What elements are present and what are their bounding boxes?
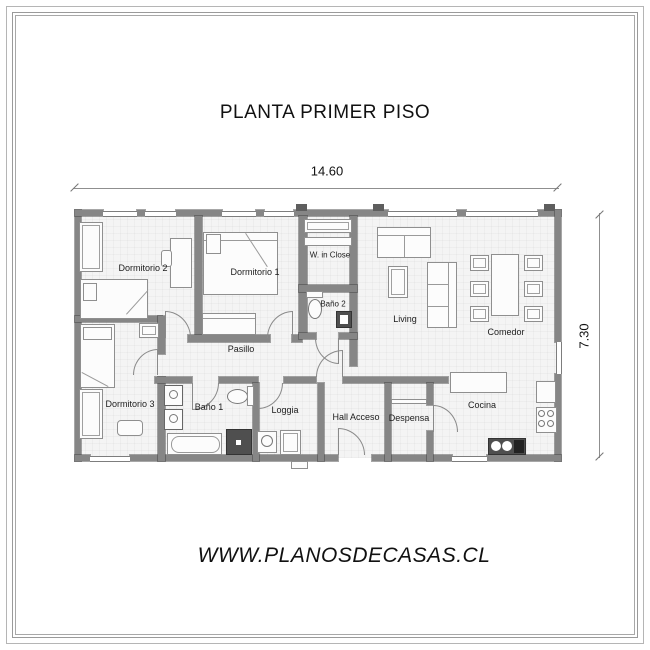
- pillow: [83, 327, 112, 340]
- sink-basin: [340, 315, 348, 324]
- pillow: [206, 234, 221, 254]
- width-dimension-label: 14.60: [311, 164, 344, 179]
- window: [466, 211, 538, 217]
- wall: [137, 210, 145, 216]
- dresser-line: [203, 318, 255, 319]
- pier: [544, 204, 555, 211]
- toilet-tank: [306, 291, 323, 298]
- room-label-pasillo: Pasillo: [228, 344, 255, 354]
- wall: [427, 431, 433, 461]
- dining-chair: [524, 255, 543, 271]
- width-dimension-line: [73, 188, 559, 189]
- dining-chair: [470, 306, 489, 322]
- window: [264, 211, 294, 217]
- room-label-bano-2: Baño 2: [320, 300, 345, 309]
- dish-rack: [514, 440, 524, 453]
- burner: [547, 420, 554, 427]
- wall: [318, 383, 324, 461]
- pier: [373, 204, 384, 211]
- wall: [75, 210, 103, 216]
- entry-step: [291, 461, 308, 469]
- room-label-bano-1: Baño 1: [195, 402, 224, 412]
- room-label-dormitorio-3: Dormitorio 3: [105, 399, 154, 409]
- sink-basin: [491, 441, 501, 451]
- wall: [195, 216, 202, 338]
- sink-basin: [169, 390, 178, 399]
- pier: [296, 204, 307, 211]
- toilet: [227, 389, 248, 404]
- wall: [155, 377, 192, 383]
- wall: [299, 333, 316, 339]
- room-label-dormitorio-2: Dormitorio 2: [118, 263, 167, 273]
- wardrobe: [79, 222, 103, 272]
- dining-chair: [470, 281, 489, 297]
- dining-chair: [524, 281, 543, 297]
- sink-basin: [502, 441, 512, 451]
- burner: [547, 410, 554, 417]
- wardrobe: [79, 389, 103, 439]
- sofa-cushion-line: [404, 236, 405, 257]
- laundry-tub: [280, 430, 301, 455]
- dining-chair: [524, 306, 543, 322]
- wall: [372, 455, 452, 461]
- dining-table: [491, 254, 519, 316]
- sofa: [427, 262, 457, 328]
- tv-unit: [388, 266, 408, 298]
- wall: [75, 455, 90, 461]
- room-label-loggia: Loggia: [271, 405, 298, 415]
- pillow: [83, 283, 97, 301]
- window: [90, 456, 130, 462]
- linen-closet: [139, 323, 159, 338]
- height-dimension-line: [599, 213, 600, 458]
- room-label-walk-in-closet: W. in Close: [310, 251, 350, 260]
- floor-plan-page: PLANTA PRIMER PISO 14.60 7.30: [0, 0, 650, 650]
- room-label-living: Living: [393, 314, 417, 324]
- wall: [339, 333, 357, 339]
- burner: [538, 420, 545, 427]
- room-label-dormitorio-1: Dormitorio 1: [230, 267, 279, 277]
- wall: [284, 377, 316, 383]
- stool: [117, 420, 143, 436]
- room-label-despensa: Despensa: [389, 413, 430, 423]
- sofa-cushion-line: [428, 306, 448, 307]
- sofa-cushion-line: [428, 284, 448, 285]
- wall: [555, 210, 561, 342]
- toilet-tank: [247, 386, 254, 406]
- page-title: PLANTA PRIMER PISO: [220, 102, 430, 124]
- fridge: [536, 381, 556, 403]
- desk: [170, 238, 192, 288]
- room-label-comedor: Comedor: [487, 327, 524, 337]
- room-label-hall-acceso: Hall Acceso: [332, 412, 379, 422]
- bathtub-inner: [171, 436, 220, 453]
- wall: [256, 210, 264, 216]
- washer-drum: [261, 435, 273, 447]
- wall: [188, 335, 270, 342]
- height-dimension-label: 7.30: [577, 323, 592, 348]
- sink-basin: [169, 414, 178, 423]
- kitchen-island: [450, 372, 507, 393]
- wall: [487, 455, 561, 461]
- sofa-back-line: [448, 263, 449, 327]
- website-text: WWW.PLANOSDECASAS.CL: [198, 544, 491, 568]
- room-label-cocina: Cocina: [468, 400, 496, 410]
- window: [145, 211, 176, 217]
- window: [388, 211, 457, 217]
- window: [452, 456, 487, 462]
- dresser: [202, 313, 256, 335]
- window: [222, 211, 256, 217]
- window: [103, 211, 137, 217]
- burner: [538, 410, 545, 417]
- wall: [427, 383, 433, 405]
- shower-drain: [236, 440, 241, 445]
- wall: [158, 316, 165, 354]
- dining-chair: [470, 255, 489, 271]
- pantry-shelf: [391, 399, 427, 404]
- closet-shelf: [304, 219, 352, 233]
- closet-shelf: [304, 237, 352, 246]
- wall: [299, 216, 307, 335]
- wall: [457, 210, 466, 216]
- window: [556, 342, 562, 374]
